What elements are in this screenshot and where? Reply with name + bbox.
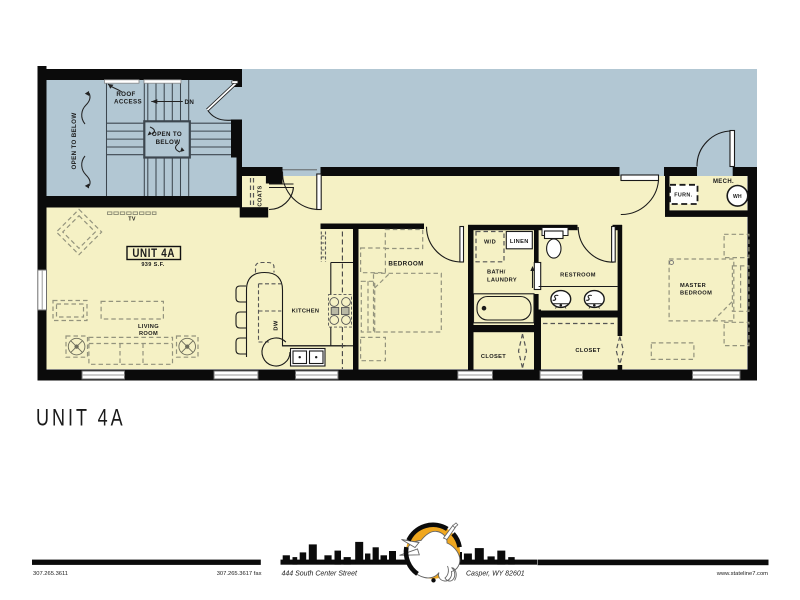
svg-text:www.stateline7.com: www.stateline7.com xyxy=(716,571,768,577)
svg-text:OPEN TO BELOW: OPEN TO BELOW xyxy=(71,112,78,169)
svg-text:UNIT 4A: UNIT 4A xyxy=(36,405,126,431)
svg-text:DW: DW xyxy=(274,320,280,330)
svg-text:W/D: W/D xyxy=(484,240,496,246)
svg-text:LINEN: LINEN xyxy=(510,239,529,245)
svg-text:KITCHEN: KITCHEN xyxy=(292,309,320,315)
svg-text:ROOM: ROOM xyxy=(139,331,158,337)
svg-text:Casper, WY 82601: Casper, WY 82601 xyxy=(466,571,525,578)
svg-text:BATH/: BATH/ xyxy=(487,270,506,276)
svg-text:UNIT 4A: UNIT 4A xyxy=(132,248,175,261)
svg-text:307.265.3611: 307.265.3611 xyxy=(33,571,68,577)
svg-text:ACCESS: ACCESS xyxy=(114,99,142,106)
svg-text:BEDROOM: BEDROOM xyxy=(388,261,423,268)
svg-text:CLOSET: CLOSET xyxy=(575,348,600,354)
svg-text:307.265.3617 fax: 307.265.3617 fax xyxy=(217,571,262,577)
svg-text:TV: TV xyxy=(128,216,136,222)
svg-text:ROOF: ROOF xyxy=(116,91,135,98)
svg-text:CLOSET: CLOSET xyxy=(481,354,506,360)
svg-text:LIVING: LIVING xyxy=(138,324,159,330)
svg-text:MECH.: MECH. xyxy=(713,179,734,185)
svg-text:DN: DN xyxy=(185,99,195,106)
svg-text:OPEN TO: OPEN TO xyxy=(152,131,182,138)
svg-text:RESTROOM: RESTROOM xyxy=(560,273,596,279)
svg-text:LAUNDRY: LAUNDRY xyxy=(487,278,517,284)
svg-text:MASTER: MASTER xyxy=(680,283,706,289)
svg-text:COATS: COATS xyxy=(258,185,264,206)
svg-text:BEDROOM: BEDROOM xyxy=(680,291,712,297)
svg-text:444 South Center Street: 444 South Center Street xyxy=(282,571,359,578)
svg-text:BELOW: BELOW xyxy=(156,139,181,146)
svg-text:WH: WH xyxy=(733,194,742,200)
svg-text:939 S.F.: 939 S.F. xyxy=(141,262,164,268)
svg-text:FURN.: FURN. xyxy=(674,193,692,199)
